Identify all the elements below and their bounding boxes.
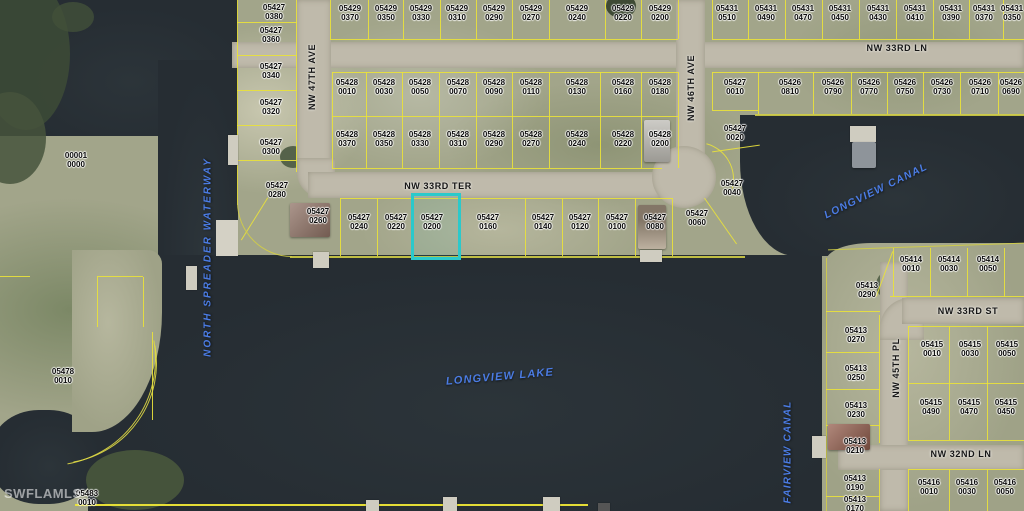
parcel-boundary-line [826, 311, 880, 312]
parcel-boundary-line [908, 469, 909, 511]
parcel-boundary-line [237, 22, 297, 23]
parcel-label: 05416 0030 [950, 478, 984, 496]
parcel-boundary-line [332, 116, 678, 117]
parcel-label: 05426 0750 [888, 78, 922, 96]
parcel-label: 05431 0430 [861, 4, 895, 22]
street-label-nw-32nd-ln: NW 32ND LN [930, 449, 991, 459]
parcel-boundary-line [330, 0, 331, 39]
dock [366, 500, 379, 511]
parcel-label: 05428 0240 [560, 130, 594, 148]
parcel-label: 05431 0350 [995, 4, 1024, 22]
parcel-boundary-line [813, 72, 814, 114]
parcel-label: 05415 0450 [989, 398, 1023, 416]
map-canvas[interactable]: 05429 0370 05429 0350 05429 0330 05429 0… [0, 0, 1024, 511]
parcel-label: 05427 0100 [600, 213, 634, 231]
parcel-boundary-line [826, 352, 880, 353]
parcel-label: 05427 0080 [638, 213, 672, 231]
boat [598, 503, 610, 511]
parcel-label: 05478 0010 [46, 367, 80, 385]
dock [812, 436, 826, 458]
parcel-label: 05427 0010 [718, 78, 752, 96]
parcel-boundary-line [237, 160, 297, 161]
parcel-label: 05431 0470 [786, 4, 820, 22]
parcel-label: 05428 0160 [606, 78, 640, 96]
parcel-label: 05428 0180 [643, 78, 677, 96]
parcel-label: 05427 0240 [342, 213, 376, 231]
parcel-label: 05426 0710 [963, 78, 997, 96]
parcel-label: 05429 0240 [560, 4, 594, 22]
parcel-label: 05429 0290 [477, 4, 511, 22]
parcel-label: 05429 0200 [643, 4, 677, 22]
parcel-label: 05428 0090 [477, 78, 511, 96]
parcel-label: 05429 0330 [404, 4, 438, 22]
street-label-nw-33rd-ter: NW 33RD TER [404, 181, 472, 191]
parcel-label: 05427 0120 [563, 213, 597, 231]
parcel-boundary-line [908, 469, 1024, 470]
parcel-label: 05429 0270 [514, 4, 548, 22]
shoreline-line [826, 258, 827, 511]
street-label-nw-46th-ave: NW 46TH AVE [686, 55, 696, 121]
street-label-nw-45th-pl: NW 45TH PL [891, 338, 901, 398]
boat-lift [852, 142, 876, 168]
dock [228, 135, 238, 165]
parcel-boundary-line [678, 0, 679, 39]
parcel-label: 05415 0030 [953, 340, 987, 358]
parcel-boundary-line [908, 326, 909, 440]
parcel-label: 05429 0350 [369, 4, 403, 22]
parcel-label: 05414 0010 [894, 255, 928, 273]
shoreline-line [755, 114, 1024, 116]
parcel-label: 05428 0130 [560, 78, 594, 96]
parcel-label: 05413 0270 [839, 326, 873, 344]
parcel-label: 05428 0050 [403, 78, 437, 96]
parcel-boundary-line [987, 326, 988, 440]
parcel-label: 05427 0380 [257, 3, 291, 21]
boat-dock [850, 126, 876, 142]
parcel-boundary-line [712, 39, 1024, 40]
parcel-label: 05431 0410 [898, 4, 932, 22]
parcel-boundary-line [330, 39, 678, 40]
parcel-label: 05413 0250 [839, 364, 873, 382]
parcel-label: 05428 0200 [643, 130, 677, 148]
parcel-boundary-line [332, 72, 678, 73]
parcel-label: 05428 0370 [330, 130, 364, 148]
parcel-label: 05428 0350 [367, 130, 401, 148]
parcel-label: 05431 0490 [749, 4, 783, 22]
parcel-boundary-line [967, 248, 968, 297]
parcel-label: 05427 0160 [471, 213, 505, 231]
parcel-label: 05431 0510 [710, 4, 744, 22]
parcel-label: 05415 0470 [952, 398, 986, 416]
parcel-boundary-line [949, 326, 950, 440]
parcel-label: 05427 0340 [254, 62, 288, 80]
parcel-label: 05426 0790 [816, 78, 850, 96]
parcel-label: 05427 0280 [260, 181, 294, 199]
parcel-label: 05414 0050 [971, 255, 1005, 273]
dock [640, 250, 662, 262]
parcel-boundary-line [237, 90, 297, 91]
driveway [216, 220, 238, 256]
parcel-label: 05426 0770 [852, 78, 886, 96]
parcel-label: 05413 0190 [838, 474, 872, 492]
dock [443, 497, 457, 511]
shoreline-line [290, 256, 745, 258]
parcel-label: 05428 0310 [441, 130, 475, 148]
parcel-label: 05429 0370 [333, 4, 367, 22]
parcel-boundary-line [908, 440, 1024, 441]
parcel-label: 05431 0450 [823, 4, 857, 22]
parcel-label: 05428 0030 [367, 78, 401, 96]
parcel-label: 05427 0020 [718, 124, 752, 142]
parcel-label: 05413 0210 [838, 437, 872, 455]
parcel-label: 05428 0070 [441, 78, 475, 96]
parcel-label: 05426 0730 [925, 78, 959, 96]
water-label-north-spreader-waterway: NORTH SPREADER WATERWAY [203, 157, 214, 357]
parcel-boundary-line [549, 0, 550, 39]
street-label-nw-47th-ave: NW 47TH AVE [307, 44, 317, 110]
street-label-nw-33rd-st: NW 33RD ST [938, 306, 999, 316]
parcel-label: 05429 0220 [606, 4, 640, 22]
parcel-boundary-line [826, 389, 880, 390]
dock [313, 252, 329, 268]
parcel-boundary-line [332, 168, 662, 169]
mangrove-patch [52, 2, 94, 32]
parcel-label: 05416 0050 [988, 478, 1022, 496]
parcel-boundary-line [340, 198, 672, 199]
parcel-boundary-line [237, 125, 297, 126]
parcel-label: 00001 0000 [59, 151, 93, 169]
parcel-boundary-line [296, 0, 297, 172]
parcel-label: 05427 0220 [379, 213, 413, 231]
parcel-label: 05427 0040 [715, 179, 749, 197]
parcel-label: 05416 0010 [912, 478, 946, 496]
parcel-label: 05413 0170 [838, 495, 872, 511]
parcel-boundary-line [879, 469, 880, 511]
parcel-boundary-line [758, 72, 759, 114]
parcel-boundary-line [712, 72, 713, 110]
parcel-boundary-line [879, 315, 880, 443]
submerged-lot-line [75, 504, 588, 506]
parcel-label: 05427 0140 [526, 213, 560, 231]
parcel-label: 05427 0320 [254, 98, 288, 116]
parcel-label: 05427 0260 [301, 207, 335, 225]
parcel-boundary-line [237, 55, 297, 56]
mls-watermark: SWFLAMLS [4, 486, 82, 501]
parcel-label: 05414 0030 [932, 255, 966, 273]
shoreline-line [237, 0, 238, 205]
parcel-label: 05426 0810 [773, 78, 807, 96]
parcel-label: 05428 0290 [477, 130, 511, 148]
parcel-boundary-line [890, 296, 1024, 297]
parcel-label: 05428 0330 [403, 130, 437, 148]
parcel-label: 05426 0690 [994, 78, 1024, 96]
parcel-boundary-line [960, 72, 961, 114]
parcel-label-highlighted: 05427 0200 [415, 213, 449, 231]
parcel-label: 05415 0050 [990, 340, 1024, 358]
parcel-label: 05428 0010 [330, 78, 364, 96]
parcel-label: 05431 0390 [934, 4, 968, 22]
parcel-boundary-line [908, 326, 1024, 327]
parcel-boundary-line [712, 110, 758, 111]
parcel-label: 05428 0220 [606, 130, 640, 148]
parcel-label: 05427 0360 [254, 26, 288, 44]
parcel-label: 05429 0310 [440, 4, 474, 22]
parcel-label: 05413 0230 [839, 401, 873, 419]
dock [543, 497, 560, 511]
parcel-label: 05427 0300 [254, 138, 288, 156]
parcel-boundary-line [908, 383, 1024, 384]
shoreline-arc [237, 202, 292, 257]
parcel-label: 05415 0010 [915, 340, 949, 358]
parcel-label: 05428 0110 [514, 78, 548, 96]
parcel-label: 05427 0060 [680, 209, 714, 227]
parcel-boundary-line [635, 198, 636, 256]
parcel-boundary-line [549, 72, 550, 168]
parcel-label: 05428 0270 [514, 130, 548, 148]
street-label-nw-33rd-ln: NW 33RD LN [866, 43, 927, 53]
dock [186, 266, 197, 290]
parcel-boundary-line [600, 72, 601, 168]
parcel-label: 05413 0290 [850, 281, 884, 299]
road-nw-33rd-ter [308, 172, 660, 198]
parcel-label: 05415 0490 [914, 398, 948, 416]
water-label-fairview-canal: FAIRVIEW CANAL [783, 401, 794, 504]
